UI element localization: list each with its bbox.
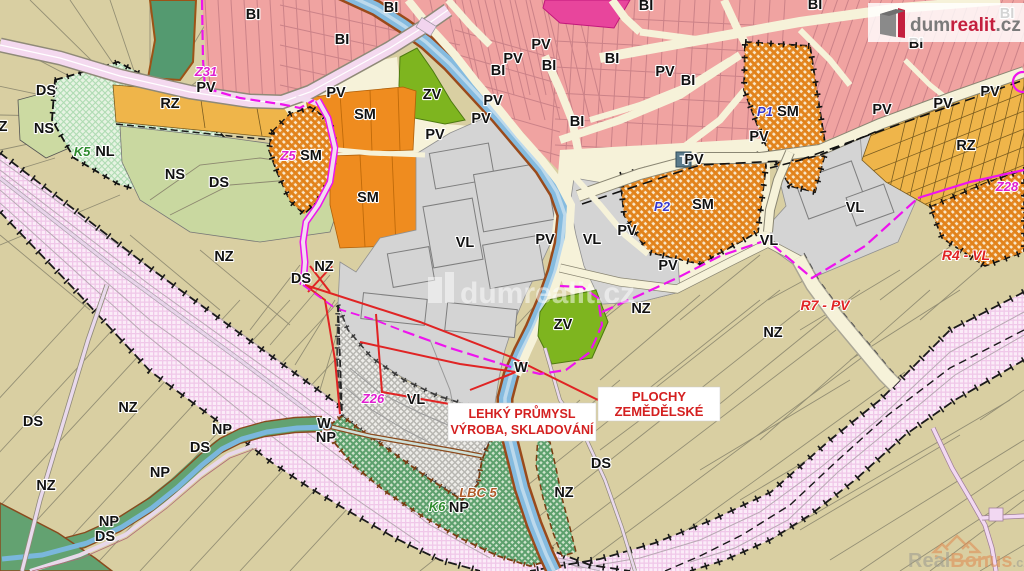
svg-text:DS: DS (95, 529, 115, 545)
svg-text:DS: DS (23, 414, 43, 430)
svg-text:PV: PV (326, 85, 346, 101)
svg-text:PV: PV (483, 93, 503, 109)
svg-text:SM: SM (777, 104, 799, 120)
svg-text:PV: PV (933, 96, 953, 112)
svg-text:R7 - PV: R7 - PV (800, 297, 851, 313)
svg-text:NL: NL (95, 144, 114, 160)
svg-text:SM: SM (354, 107, 376, 123)
svg-text:P2: P2 (654, 199, 671, 214)
svg-text:K5: K5 (74, 144, 91, 159)
svg-text:Z26: Z26 (361, 391, 385, 406)
svg-text:LEHKÝ PRŮMYSL: LEHKÝ PRŮMYSL (469, 405, 576, 421)
svg-text:PV: PV (749, 129, 769, 145)
svg-text:Z31: Z31 (194, 64, 217, 79)
svg-text:VÝROBA, SKLADOVÁNÍ: VÝROBA, SKLADOVÁNÍ (450, 422, 594, 437)
svg-text:SM: SM (357, 190, 379, 206)
svg-text:ZEMĚDĚLSKÉ: ZEMĚDĚLSKÉ (615, 404, 704, 419)
svg-text:PV: PV (655, 64, 675, 80)
svg-text:W: W (514, 360, 528, 376)
svg-text:W: W (317, 416, 331, 432)
svg-text:NZ: NZ (763, 325, 782, 341)
svg-text:VL: VL (760, 233, 779, 249)
svg-text:RZ: RZ (160, 96, 179, 112)
svg-text:BI: BI (808, 0, 823, 13)
svg-text:Z5: Z5 (279, 148, 296, 163)
svg-text:dumrealit.cz: dumrealit.cz (460, 277, 635, 310)
svg-text:BI: BI (570, 114, 585, 130)
svg-text:NP: NP (150, 465, 170, 481)
svg-text:NP: NP (449, 500, 469, 516)
svg-text:DS: DS (591, 456, 611, 472)
svg-text:NS: NS (34, 121, 54, 137)
svg-text:ZV: ZV (423, 87, 442, 103)
svg-text:BI: BI (605, 51, 620, 67)
svg-text:NZ: NZ (118, 400, 137, 416)
svg-text:BI: BI (246, 7, 261, 23)
svg-text:NZ: NZ (314, 259, 333, 275)
svg-text:ZV: ZV (554, 317, 573, 333)
svg-text:PV: PV (617, 223, 637, 239)
svg-text:PV: PV (503, 51, 523, 67)
svg-text:BI: BI (639, 0, 654, 14)
svg-text:PV: PV (684, 152, 704, 168)
svg-text:PV: PV (425, 127, 445, 143)
svg-text:BI: BI (384, 0, 399, 16)
svg-text:PV: PV (872, 102, 892, 118)
svg-text:SM: SM (300, 148, 322, 164)
svg-text:NP: NP (99, 514, 119, 530)
svg-text:NZ: NZ (554, 485, 573, 501)
svg-text:PLOCHY: PLOCHY (632, 389, 687, 404)
svg-text:VL: VL (583, 232, 602, 248)
svg-text:R4 - VL: R4 - VL (942, 247, 990, 263)
svg-text:PV: PV (196, 80, 216, 96)
svg-text:VL: VL (846, 200, 865, 216)
svg-text:BI: BI (681, 73, 696, 89)
svg-text:PV: PV (980, 84, 1000, 100)
svg-text:VL: VL (407, 392, 426, 408)
svg-text:DS: DS (190, 440, 210, 456)
svg-text:NS: NS (165, 167, 185, 183)
svg-text:Z28: Z28 (995, 179, 1019, 194)
svg-text:BI: BI (542, 58, 557, 74)
svg-text:BI: BI (335, 32, 350, 48)
svg-text:NZ: NZ (214, 249, 233, 265)
svg-text:P1: P1 (757, 104, 773, 119)
svg-text:RZ: RZ (956, 138, 975, 154)
svg-text:RealBonus.cz: RealBonus.cz (908, 550, 1024, 571)
svg-text:PV: PV (658, 258, 678, 274)
svg-text:VL: VL (456, 235, 475, 251)
svg-text:PV: PV (535, 232, 555, 248)
svg-text:NZ: NZ (36, 478, 55, 494)
svg-text:PV: PV (531, 37, 551, 53)
svg-text:dumrealit.cz: dumrealit.cz (910, 15, 1021, 36)
svg-text:DS: DS (291, 271, 311, 287)
svg-text:LBC 5: LBC 5 (459, 485, 497, 500)
svg-text:K6: K6 (429, 499, 446, 514)
svg-text:NP: NP (316, 430, 336, 446)
svg-text:DS: DS (36, 83, 56, 99)
svg-text:SM: SM (692, 197, 714, 213)
svg-text:PV: PV (471, 111, 491, 127)
svg-text:NP: NP (212, 422, 232, 438)
svg-text:Z: Z (0, 119, 8, 135)
svg-text:DS: DS (209, 175, 229, 191)
